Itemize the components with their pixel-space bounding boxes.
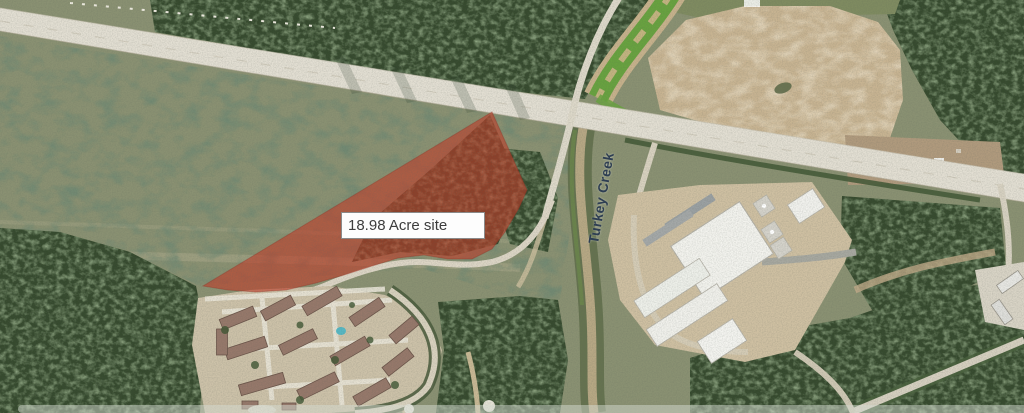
satellite-basemap bbox=[0, 0, 1024, 413]
image-grain bbox=[0, 0, 1024, 413]
aerial-map: 18.98 Acre site Turkey Creek bbox=[0, 0, 1024, 413]
bottom-edge-bar bbox=[18, 405, 1024, 413]
site-label: 18.98 Acre site bbox=[341, 212, 485, 239]
